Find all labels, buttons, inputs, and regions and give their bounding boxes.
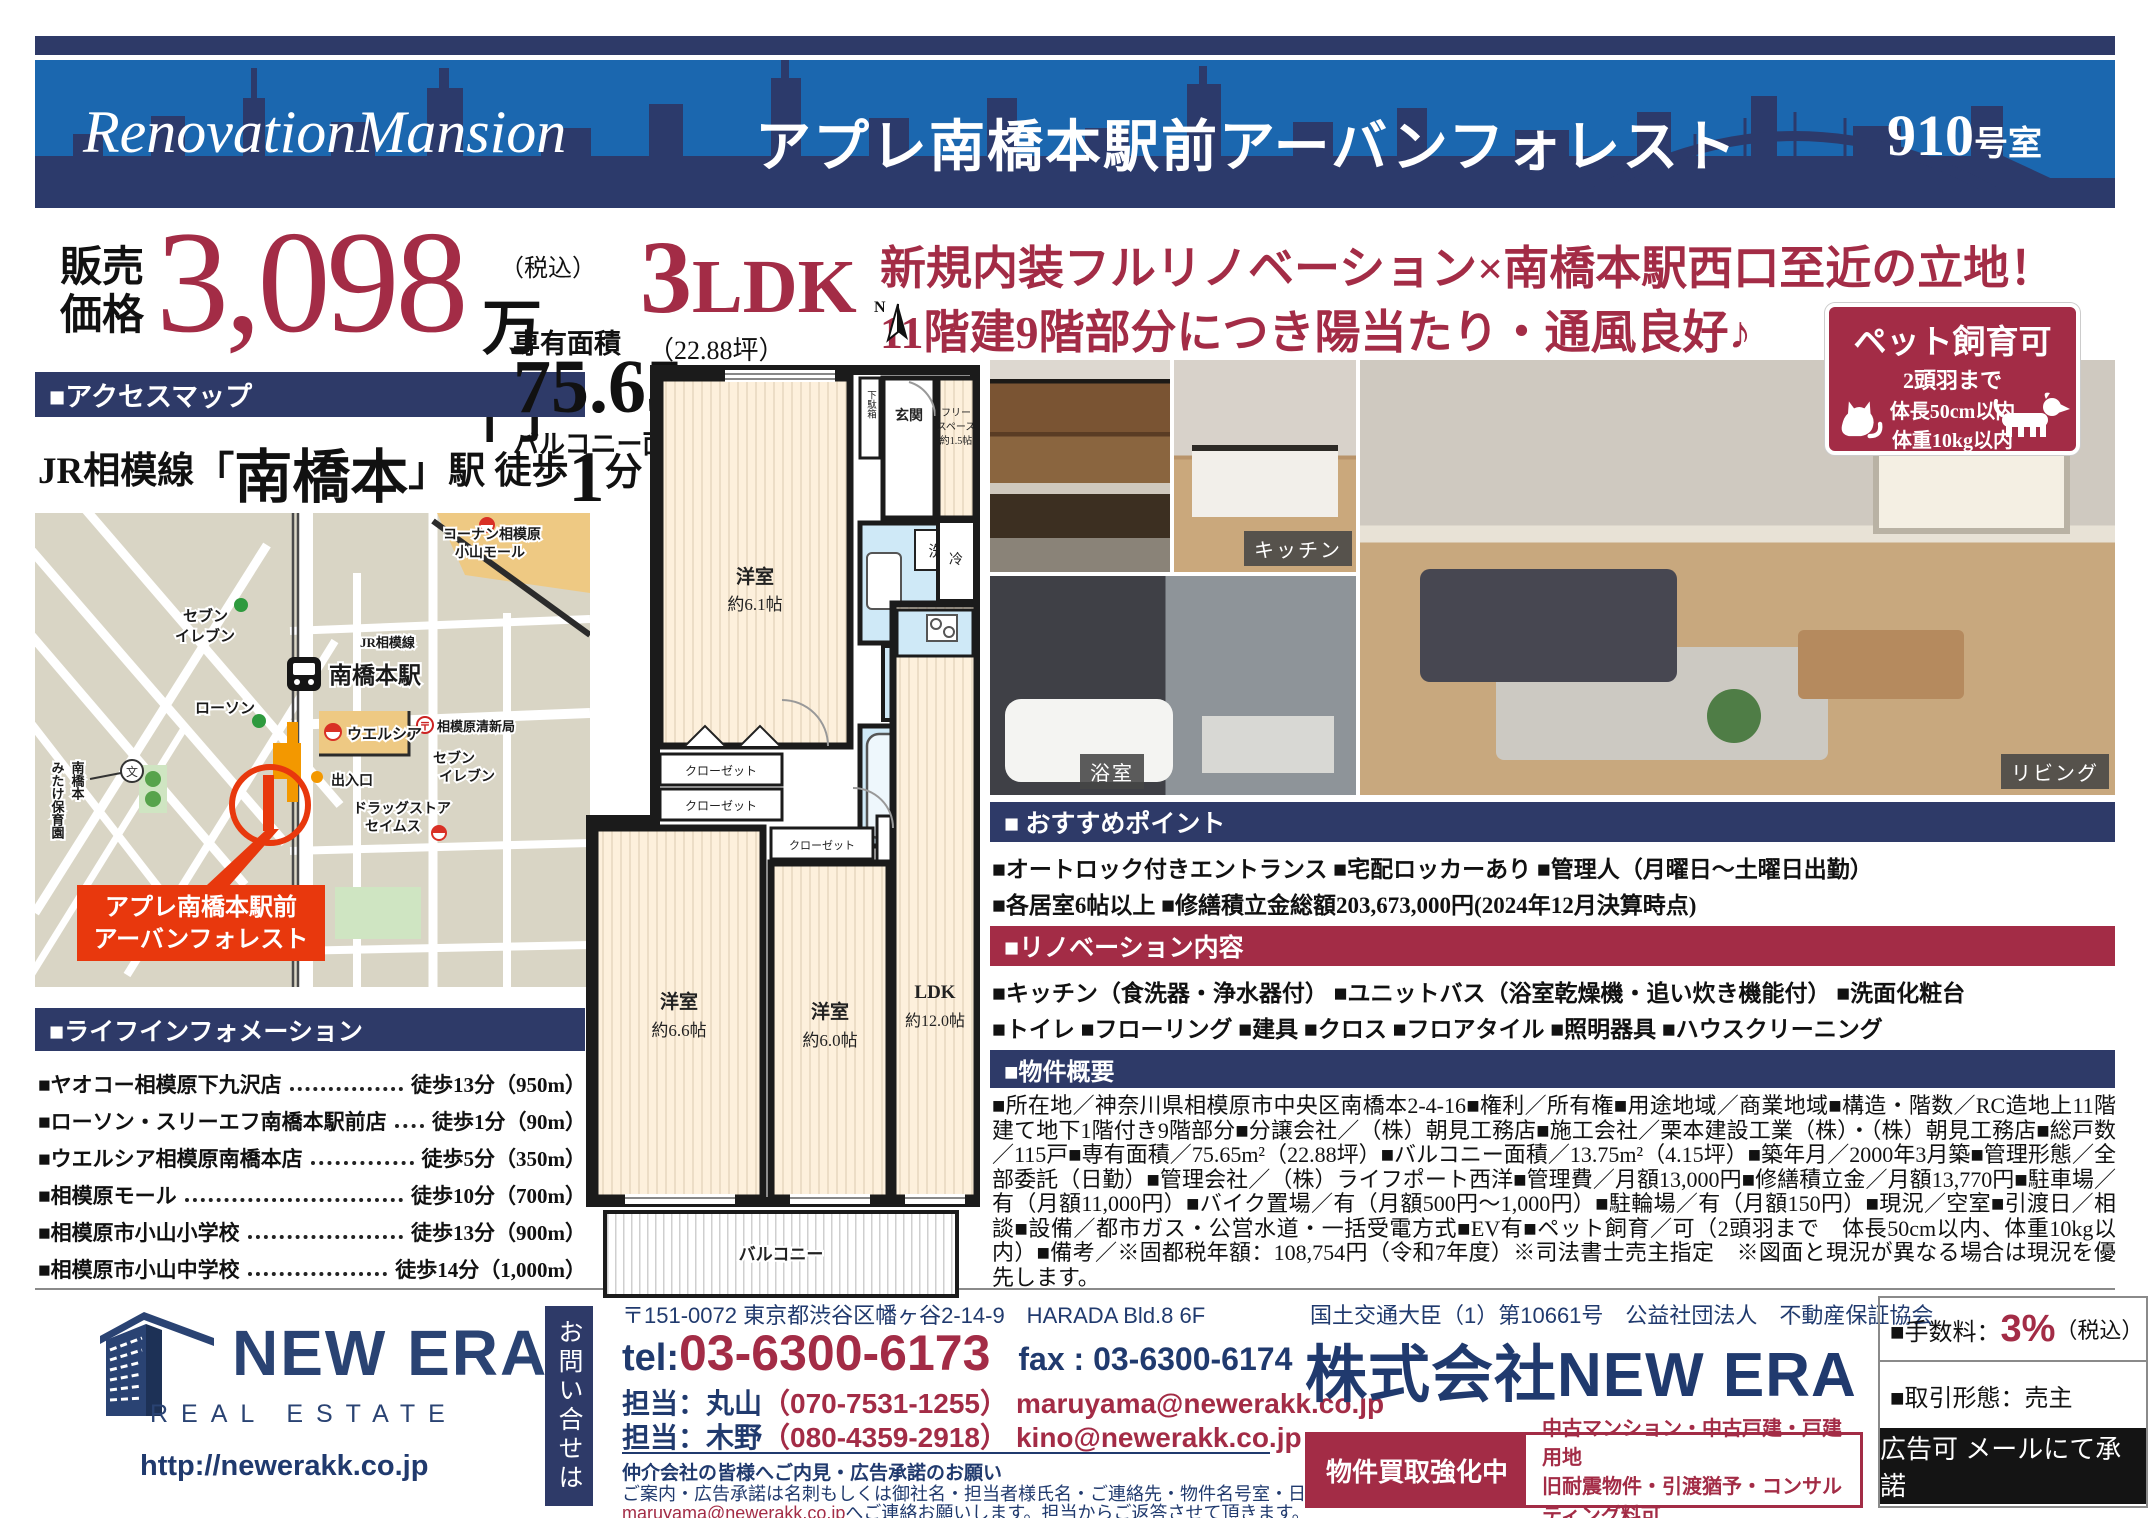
ldk-size: 約12.0帖 <box>905 1012 965 1030</box>
room-66-label: 洋室 <box>660 990 698 1013</box>
section-renovation-label: ■リノベーション内容 <box>1004 928 1244 964</box>
header-brand: RenovationMansion <box>83 98 566 167</box>
life-item-name: ■相模原モール <box>38 1180 177 1210</box>
header-room: 910号室 <box>1887 102 2042 169</box>
closet-2-label: クローゼット <box>685 799 757 813</box>
map-label-seven-left2: イレブン <box>175 627 235 645</box>
life-item-name: ■ローソン・スリーエフ南橋本駅前店 <box>38 1106 387 1136</box>
map-label-seven-right2: イレブン <box>439 768 495 785</box>
notice-mail[interactable]: maruyama@newerakk.co.jp <box>622 1503 845 1518</box>
buy-promo-box: 物件買取強化中 中古マンション・中古戸建・戸建用地 旧耐震物件・引渡猶予・コンサ… <box>1305 1432 1863 1508</box>
room-61-size: 約6.1帖 <box>727 595 782 614</box>
room-66 <box>595 828 763 1198</box>
staff2-phone[interactable]: （080-4359-2918） <box>762 1422 1008 1453</box>
dot-leader <box>248 1235 403 1239</box>
living-sofa <box>1420 569 1677 682</box>
photo-kitchen-cabinets[interactable] <box>990 360 1170 572</box>
free-space <box>938 378 975 518</box>
life-item: ■ローソン・スリーエフ南橋本駅前店徒歩1分（90m） <box>38 1099 586 1136</box>
map-label-station: 南橋本駅 <box>329 663 421 688</box>
life-item-name: ■ウエルシア相模原南橋本店 <box>38 1143 303 1173</box>
section-access-map-label: ■アクセスマップ <box>49 375 252 414</box>
shoebox-label: 下駄箱 <box>865 390 877 419</box>
map-label-lawson: ローソン <box>195 701 255 717</box>
renovation-line2: ■トイレ ■フローリング ■建具 ■クロス ■フロアタイル ■照明器具 ■ハウス… <box>992 1010 2117 1044</box>
access-bracket-r: 」 <box>408 449 448 494</box>
tel-row: tel:03-6300-6173fax : 03-6300-6174 <box>622 1324 1292 1382</box>
map-label-exit: 出入口 <box>331 772 373 789</box>
inquiry-vertical-bar: お問い合せは <box>545 1306 593 1506</box>
dot-leader <box>290 1087 403 1091</box>
map-label-seven-left1: セブン <box>183 607 228 625</box>
tel-number[interactable]: 03-6300-6173 <box>679 1325 990 1381</box>
renovation-line1: ■キッチン（食洗器・浄水器付） ■ユニットバス（浴室乾燥機・追い炊き機能付） ■… <box>992 974 2117 1008</box>
logo-name: NEW ERA <box>232 1316 548 1390</box>
pet-allowed-box: ペット飼育可 2頭羽まで 体長50cm以内 体重10kg以内 <box>1825 303 2080 455</box>
staff1-label: 担当：丸山 <box>622 1388 762 1419</box>
counter-highlight <box>990 483 1170 494</box>
footer-divider <box>35 1288 2115 1290</box>
buy-promo-line1: 中古マンション・中古戸建・戸建用地 <box>1542 1412 1860 1470</box>
notice-body2-text: へご連絡お願いします。担当からご返答させて頂きます。 <box>845 1503 1309 1518</box>
catch-line1: 新規内装フルリノベーション×南橋本駅西口至近の立地！ <box>880 232 1880 298</box>
map-callout-line2: アーバンフォレスト <box>94 926 309 953</box>
staff2-mail[interactable]: kino@newerakk.co.jp <box>1016 1422 1302 1453</box>
fee-row: ■手数料：3%（税込） <box>1880 1298 2146 1362</box>
map-label-drug2: セイムス <box>365 819 421 835</box>
logo-sub: REAL ESTATE <box>150 1400 458 1429</box>
section-access-map: ■アクセスマップ <box>35 372 585 417</box>
header-property-title: アプレ南橋本駅前アーバンフォレスト <box>755 102 1738 183</box>
entrance <box>883 378 935 518</box>
north-label: N <box>874 299 886 316</box>
room-61-label: 洋室 <box>736 565 774 588</box>
island-counter <box>1192 445 1338 517</box>
dog-icon <box>1992 389 2072 447</box>
section-points-label: ■ おすすめポイント <box>1004 804 1225 840</box>
pet-box-title: ペット飼育可 <box>1829 315 2076 363</box>
section-life-info-label: ■ライフインフォメーション <box>49 1012 363 1048</box>
life-item-walk: 徒歩1分（90m） <box>432 1106 586 1136</box>
staff2-label: 担当：木野 <box>622 1422 762 1453</box>
life-item-name: ■相模原市小山中学校 <box>38 1254 240 1284</box>
tel-label: tel: <box>622 1337 679 1379</box>
free-space-label2: スペース <box>937 422 976 433</box>
staff1-phone[interactable]: （070-7531-1255） <box>762 1388 1008 1419</box>
ldk-label: LDK <box>914 982 955 1003</box>
type-big: 3 <box>640 220 692 335</box>
room-66-size: 約6.6帖 <box>651 1021 706 1040</box>
access-rail: JR相模線 <box>38 451 194 492</box>
balcony-label: バルコニー <box>739 1245 824 1264</box>
life-item: ■ウエルシア相模原南橋本店徒歩5分（350m） <box>38 1136 586 1173</box>
section-outline-label: ■物件概要 <box>1004 1052 1115 1087</box>
room-60-label: 洋室 <box>811 1000 849 1023</box>
staff2-row: 担当：木野（080-4359-2918）kino@newerakk.co.jp <box>622 1416 1302 1456</box>
life-item-name: ■ヤオコー相模原下九沢店 <box>38 1069 282 1099</box>
floor-plan[interactable]: 洋室 約6.1帖 下駄箱 玄関 フリー スペース 約1.5帖 洗 洗面室 冷 ト… <box>575 358 980 1303</box>
life-item-walk: 徒歩14分（1,000m） <box>395 1254 586 1284</box>
fee-tax: （税込） <box>2055 1313 2143 1345</box>
life-item-walk: 徒歩5分（350m） <box>422 1143 587 1173</box>
flyer-page: RenovationMansion アプレ南橋本駅前アーバンフォレスト 910号… <box>0 0 2150 1518</box>
buy-promo-lines: 中古マンション・中古戸建・戸建用地 旧耐震物件・引渡猶予・コンサルティング料可 <box>1526 1435 1860 1505</box>
map-label-nursery1: 南橋本 <box>70 760 85 801</box>
header-room-no: 910 <box>1887 103 1974 168</box>
bath-label: 浴室 <box>1080 754 1144 789</box>
deal-row: ■取引形態：売主 <box>1880 1362 2146 1428</box>
map-label-mall1: コーナン相模原 <box>443 526 541 543</box>
map-label-railline: JR相模線 <box>360 635 416 650</box>
ad-row: 広告可 メールにて承諾 <box>1880 1428 2146 1504</box>
train-station-icon <box>287 657 321 691</box>
life-item-name: ■相模原市小山小学校 <box>38 1217 240 1247</box>
life-item: ■相模原モール徒歩10分（700m） <box>38 1173 586 1210</box>
life-info-list: ■ヤオコー相模原下九沢店徒歩13分（950m） ■ローソン・スリーエフ南橋本駅前… <box>38 1062 586 1284</box>
company-url[interactable]: http://newerakk.co.jp <box>140 1450 428 1483</box>
access-line: JR相模線「南橋本」駅 徒歩1分 <box>38 430 578 510</box>
map-label-nursery2: みたけ保育園 <box>50 761 66 840</box>
access-map[interactable]: アプレ南橋本駅前 アーバンフォレスト 文 〒 コーナン相模原 小山モール セブン… <box>35 513 590 987</box>
fee-label: ■手数料： <box>1890 1312 2001 1347</box>
kitchen-label: キッチン <box>1244 531 1352 566</box>
life-item: ■ヤオコー相模原下九沢店徒歩13分（950m） <box>38 1062 586 1099</box>
living-label: リビング <box>2001 754 2109 789</box>
photo-bathroom[interactable]: 浴室 <box>990 576 1356 795</box>
entrance-label: 玄関 <box>895 407 923 424</box>
life-item-walk: 徒歩10分（700m） <box>411 1180 586 1210</box>
section-renovation: ■リノベーション内容 <box>990 926 2115 966</box>
contact-divider <box>622 1452 1270 1454</box>
dot-leader <box>185 1198 403 1202</box>
closet-3-label: クローゼット <box>789 839 855 852</box>
life-item-walk: 徒歩13分（900m） <box>411 1217 586 1247</box>
cat-icon <box>1835 389 1887 445</box>
header-top-strip <box>35 36 2115 55</box>
dot-leader <box>311 1161 414 1165</box>
fridge-label: 冷 <box>949 552 963 568</box>
map-label-welcia: ウエルシア <box>347 726 422 743</box>
fax-number: fax : 03-6300-6174 <box>1018 1341 1292 1377</box>
room-61 <box>660 378 850 746</box>
north-compass-icon: N <box>864 296 916 352</box>
school-icon: 文 <box>126 764 138 779</box>
dot-leader <box>248 1272 388 1276</box>
section-points: ■ おすすめポイント <box>990 802 2115 842</box>
access-station: 南橋本 <box>234 445 408 510</box>
map-label-mall2: 小山モール <box>455 545 525 561</box>
ldk <box>893 604 977 1198</box>
bath-counter <box>1202 716 1334 773</box>
room-60-size: 約6.0帖 <box>802 1031 857 1050</box>
living-plant <box>1707 689 1761 743</box>
price-amount: 3,098 <box>156 198 465 366</box>
living-table <box>1798 630 1964 700</box>
section-outline: ■物件概要 <box>990 1050 2115 1088</box>
points-line2: ■各居室6帖以上 ■修繕積立金総額203,673,000円(2024年12月決算… <box>992 886 2117 920</box>
map-label-drug1: ドラッグストア <box>353 800 451 817</box>
free-space-label3: 約1.5帖 <box>940 434 973 447</box>
life-item-walk: 徒歩13分（950m） <box>411 1069 586 1099</box>
header-banner: RenovationMansion アプレ南橋本駅前アーバンフォレスト 910号… <box>35 60 2115 208</box>
outline-text: ■所在地／神奈川県相模原市中央区南橋本2-4-16■権利／所有権■用途地域／商業… <box>992 1094 2116 1289</box>
fee-value: 3% <box>2001 1308 2056 1351</box>
map-callout-line1: アプレ南橋本駅前 <box>105 893 297 921</box>
map-label-post: 相模原清新局 <box>437 719 515 734</box>
fee-box: ■手数料：3%（税込） ■取引形態：売主 広告可 メールにて承諾 <box>1878 1296 2148 1508</box>
catch-line2: 11階建9階部分につき陽当たり・通風良好♪ <box>880 296 1880 362</box>
type-block: 3LDK <box>640 218 857 337</box>
closet-1-label: クローゼット <box>685 764 757 778</box>
header-room-suffix: 号室 <box>1974 126 2042 163</box>
dot-leader <box>395 1124 424 1128</box>
notice-body2: maruyama@newerakk.co.jpへご連絡お願いします。担当からご返… <box>622 1499 1310 1518</box>
photo-kitchen-island[interactable]: キッチン <box>1174 360 1356 572</box>
price-label: 販売価格 <box>60 244 144 341</box>
life-item: ■相模原市小山小学校徒歩13分（900m） <box>38 1210 586 1247</box>
buy-promo-title: 物件買取強化中 <box>1308 1435 1526 1505</box>
section-life-info: ■ライフインフォメーション <box>35 1008 585 1051</box>
access-bracket-l: 「 <box>194 449 234 494</box>
company-name: 株式会社NEW ERA <box>1305 1324 1857 1414</box>
type-rest: LDK <box>692 245 857 329</box>
life-item: ■相模原市小山中学校徒歩14分（1,000m） <box>38 1247 586 1284</box>
map-label-seven-right1: セブン <box>433 750 475 767</box>
price-tax-note: （税込） <box>500 248 596 283</box>
free-space-label1: フリー <box>941 408 971 419</box>
points-line1: ■オートロック付きエントランス ■宅配ロッカーあり ■管理人（月曜日～土曜日出勤… <box>992 850 2117 884</box>
buy-promo-line2: 旧耐震物件・引渡猶予・コンサルティング料可 <box>1542 1470 1860 1518</box>
